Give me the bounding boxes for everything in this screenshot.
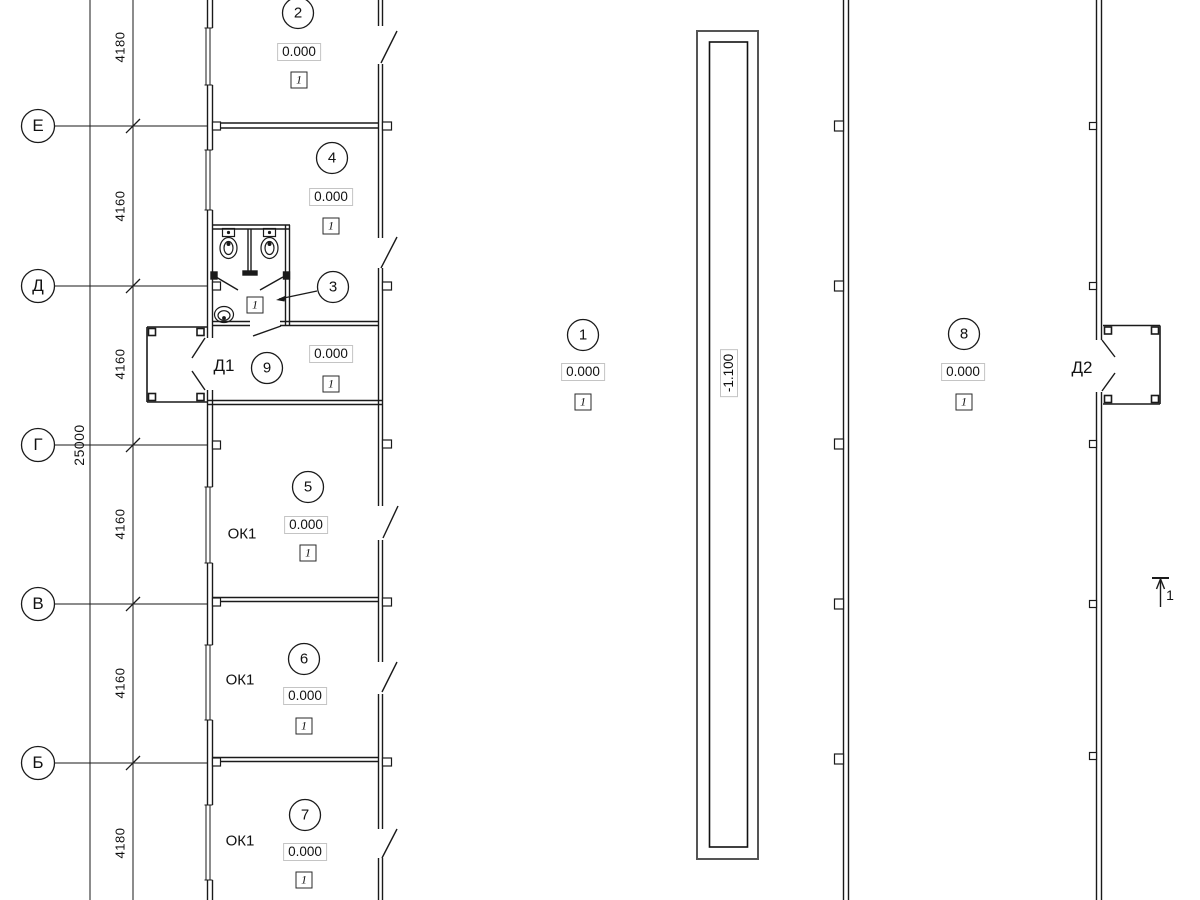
dimension-label: 4160 <box>113 191 128 222</box>
axis-label-v: В <box>32 594 43 614</box>
dimension-label: 4160 <box>113 668 128 699</box>
floor-plan-linework <box>0 0 1200 900</box>
dimension-label: 4180 <box>113 32 128 63</box>
door-d1-leaves <box>192 338 205 390</box>
room-number: 9 <box>263 360 271 377</box>
porch-left <box>147 327 207 402</box>
interior-walls <box>207 123 383 762</box>
axis-label-d: Д <box>32 276 44 296</box>
floor-type-label: 1 <box>956 394 973 411</box>
floor-type-label: 1 <box>296 718 313 735</box>
elevation-label: 0.000 <box>283 843 327 861</box>
floor-type-label: 1 <box>296 872 313 889</box>
floor-type-label: 1 <box>323 218 340 235</box>
elevation-label: 0.000 <box>561 363 605 381</box>
wall-tabs <box>213 121 1097 766</box>
floor-type-label: 1 <box>291 72 308 89</box>
axis-label-b: Б <box>32 753 43 773</box>
door-label-d1: Д1 <box>214 356 235 376</box>
window-symbols <box>205 28 213 880</box>
room-number: 4 <box>328 150 336 167</box>
floor-type-label: 1 <box>575 394 592 411</box>
room-number: 1 <box>579 327 587 344</box>
floor-type-label: 1 <box>300 545 317 562</box>
left-wall <box>205 0 213 900</box>
dimension-label: 4160 <box>113 509 128 540</box>
room-circles <box>252 0 980 831</box>
door-d2-leaves <box>1102 340 1115 391</box>
middle-wall <box>844 0 849 900</box>
floor-type-label: 1 <box>247 297 264 314</box>
elevation-label: 0.000 <box>277 43 321 61</box>
toilet-icon <box>261 229 278 259</box>
dimension-label: 4160 <box>113 349 128 380</box>
toilet-room <box>211 225 290 336</box>
total-dimension-label: 25000 <box>71 424 87 465</box>
elevation-label: 0.000 <box>309 188 353 206</box>
room-number: 5 <box>304 479 312 496</box>
ramp <box>697 31 758 859</box>
section-mark-label: 1 <box>1166 587 1174 603</box>
window-label-ok1: ОК1 <box>226 833 255 850</box>
elevation-label: 0.000 <box>941 363 985 381</box>
axis-label-e: Е <box>32 116 43 136</box>
floor-type-label: 1 <box>323 376 340 393</box>
sink-icon <box>215 307 234 323</box>
room-number: 2 <box>294 5 302 22</box>
room-number: 3 <box>329 279 337 296</box>
porch-right <box>1103 326 1160 405</box>
elevation-label: 0.000 <box>284 516 328 534</box>
toilet-icon <box>220 229 237 259</box>
axis-label-g: Г <box>33 435 42 455</box>
room-number: 6 <box>300 651 308 668</box>
ramp-elevation-label: -1.100 <box>720 349 738 397</box>
door-label-d2: Д2 <box>1072 358 1093 378</box>
elevation-label: 0.000 <box>309 345 353 363</box>
elevation-label: 0.000 <box>283 687 327 705</box>
room3-leader <box>276 291 317 302</box>
window-label-ok1: ОК1 <box>228 526 257 543</box>
window-label-ok1: ОК1 <box>226 672 255 689</box>
room-number: 8 <box>960 326 968 343</box>
dimension-label: 4180 <box>113 828 128 859</box>
room-number: 7 <box>301 807 309 824</box>
floor-plan: Е Д Г В Б 4180 4160 4160 4160 4160 4180 … <box>0 0 1200 900</box>
right-wall <box>1097 0 1116 900</box>
